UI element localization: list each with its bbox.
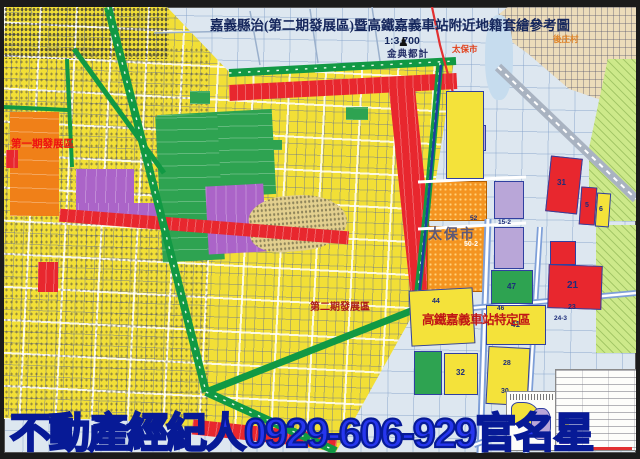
parcel-46-label: 46: [497, 306, 504, 313]
small-park-3: [266, 140, 282, 150]
parcel-21-label: 21: [567, 281, 578, 291]
industry-parcel-north: [427, 181, 487, 221]
farmland-hatched-e: [596, 225, 636, 353]
phase2-zone-label: 第二期發展區: [310, 303, 370, 313]
parcel-6-label: 6: [599, 206, 603, 213]
parcel-24-3-label: 24-3: [554, 316, 567, 323]
houzhuang-village-label: 後庄村: [553, 35, 579, 44]
parcel-44-label: 44: [432, 298, 440, 305]
broker-ad-banner: 不動產經紀人0929-606-929官名星: [4, 399, 636, 453]
publisher-logo-icon: ♟: [398, 36, 409, 48]
parcel-52-label: 52: [470, 216, 477, 223]
station-purple-parcel-2: [494, 181, 524, 219]
cadastral-map: 21 31 5 6 47 41 44 46 28 30 32 50-2 52 1…: [4, 7, 636, 453]
parcel-23-label: 23: [568, 304, 576, 311]
commercial-block-w-edge: [6, 150, 18, 168]
parcel-15-2-label: 15-2: [498, 220, 511, 227]
parcel-5-label: 5: [585, 202, 589, 209]
hsr-zone-label: 高鐵嘉義車站特定區: [422, 314, 530, 327]
station-yellow-parcel-n: [446, 91, 484, 179]
commercial-block-sw: [38, 262, 58, 292]
parcel-28-label: 28: [503, 360, 511, 367]
parcel-31-label: 31: [557, 179, 566, 187]
parcel-32-label: 32: [456, 369, 465, 377]
phase1-zone-label: 第一期發展區: [11, 139, 74, 150]
station-purple-parcel-3: [494, 227, 524, 269]
taibao-city-label-top: 太保市: [452, 45, 478, 54]
small-park-1: [190, 91, 210, 104]
scan-frame: 21 31 5 6 47 41 44 46 28 30 32 50-2 52 1…: [0, 0, 640, 459]
small-park-2: [346, 107, 368, 120]
old-town-dark-texture: [4, 7, 169, 59]
parcel-green-sw-box: [414, 351, 442, 395]
taibao-city-label-large: 太保市: [428, 227, 476, 241]
publisher-name: 金典都計: [378, 51, 438, 61]
parcel-small-red-box: [550, 241, 576, 265]
map-title: 嘉義縣治(第二期發展區)暨高鐵嘉義車站附近地籍套繪參考圖: [154, 19, 626, 33]
parcel-50-2-label: 50-2: [464, 241, 478, 248]
parcel-6-box: [595, 193, 611, 228]
parcel-47-label: 47: [507, 283, 516, 291]
